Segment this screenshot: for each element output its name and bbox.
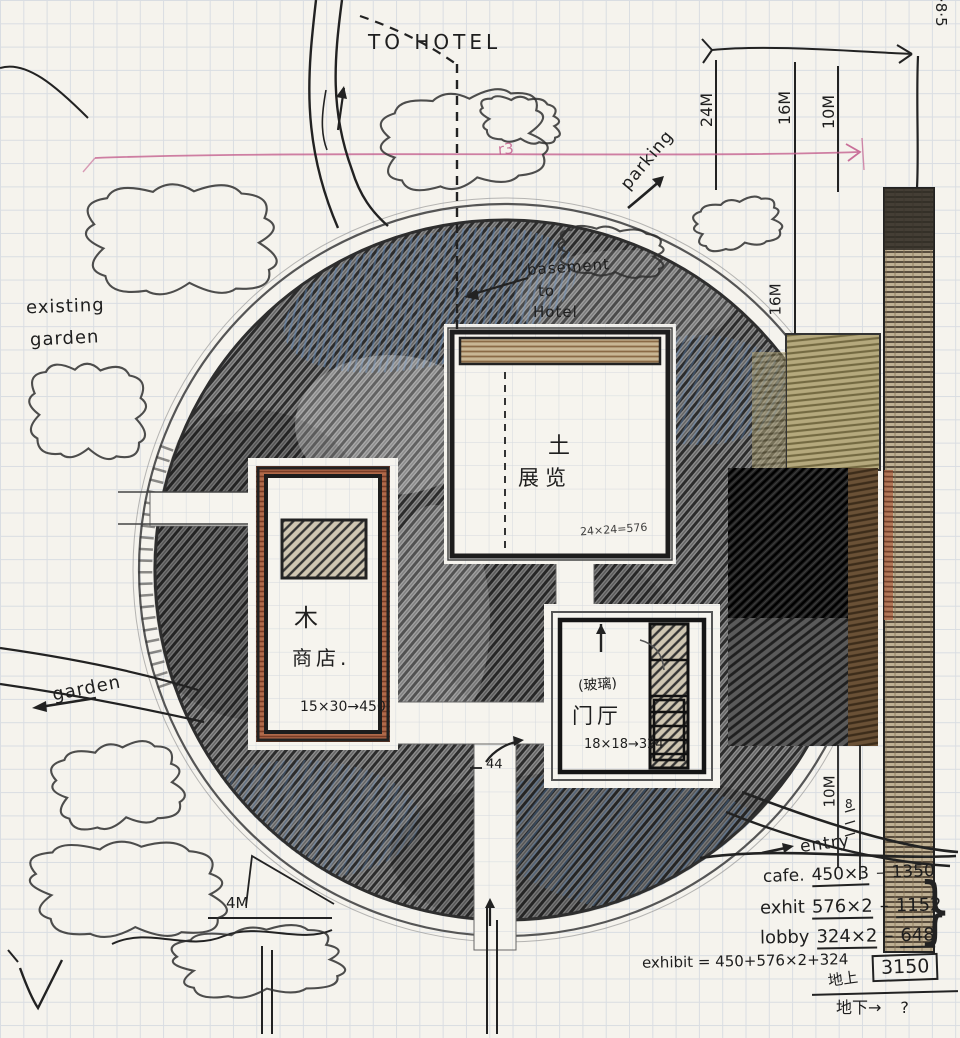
shop-area-label: 15×30→450 — [300, 700, 386, 714]
calc-exhibit-label: exhit — [760, 899, 805, 918]
dim-16m-mid-label: 16M — [769, 283, 784, 315]
existing-garden-label-line2: garden — [30, 328, 100, 350]
lobby-name-label: 门厅 — [572, 706, 622, 727]
basement-note-line2: to — [538, 284, 555, 299]
calc-lobby-row: lobby 324×2 – 648 — [760, 926, 935, 950]
lobby-material-label: (玻璃) — [578, 677, 618, 694]
calc-exhibit-expr: 576×2 — [812, 898, 873, 920]
tan-grove-block — [786, 334, 880, 470]
entry-arrow — [782, 843, 794, 853]
dim-10m-top-label: 10M — [821, 95, 837, 129]
garden-arrow — [32, 701, 47, 712]
above-ground-label: 地上 — [827, 970, 859, 989]
brown-strip — [848, 468, 878, 746]
dim-10m-right-label: 10M — [823, 775, 838, 807]
calc-dash: – — [876, 865, 885, 882]
dim-16m-top-label: 16M — [777, 91, 793, 125]
sketch-sheet: TO HOTEL ·8·5 parking basement to Hotel … — [0, 0, 960, 1038]
calc-lobby-label: lobby — [760, 929, 810, 948]
calc-dash: – — [884, 927, 893, 945]
existing-garden-label-line1: existing — [26, 297, 105, 318]
lobby-building — [544, 604, 720, 788]
total-boxed-value: 3150 — [872, 953, 939, 982]
date-label: ·8·5 — [933, 0, 948, 27]
tree-cloud — [51, 741, 185, 829]
calc-cafe-label: cafe. — [763, 868, 805, 886]
below-ground-row: 地下→ ? — [836, 1000, 909, 1016]
lobby-area-label: 18×18→324 — [584, 738, 664, 751]
exhibition-material-label: 土 — [548, 436, 570, 458]
exhibition-top-hatch — [460, 338, 660, 364]
calc-brace: } — [918, 874, 952, 948]
basement-note-line3: Hotel — [533, 305, 578, 320]
check-mark — [20, 960, 62, 1008]
calc-dash: – — [880, 897, 889, 915]
tree-cloud — [172, 925, 346, 998]
dim-4m-label: 4M — [226, 896, 249, 911]
shop-name-label: 商店. — [292, 648, 350, 668]
calc-exhibit-row: exhit 576×2 – 1152 — [760, 896, 942, 920]
calc-lobby-expr: 324×2 — [816, 927, 877, 949]
exhibition-name-label: 展览 — [518, 468, 572, 489]
calc-total-expr: exhibit = 450+576×2+324 — [642, 952, 849, 971]
dim-24m-label: 24M — [699, 93, 715, 127]
pink-reference-line — [83, 138, 864, 172]
tree-cloud — [86, 184, 277, 294]
calc-cafe-expr: 450×3 — [811, 865, 869, 887]
tree-cloud — [693, 197, 782, 252]
small-8-mark: 8 — [845, 798, 853, 810]
below-ground-value: ? — [900, 1000, 909, 1016]
corridor-dim-label: 44 — [486, 758, 503, 772]
road-strip — [884, 188, 934, 952]
to-hotel-arrow — [336, 86, 347, 99]
shop-material-label: 木 — [294, 606, 318, 630]
dark-block — [728, 468, 848, 618]
below-ground-label: 地下→ — [836, 1000, 881, 1016]
r3-label: r3 — [497, 141, 514, 157]
to-hotel-label: TO HOTEL — [368, 32, 501, 52]
shop-inner-room — [282, 520, 366, 578]
tree-cloud — [29, 364, 146, 459]
tree-cloud — [480, 96, 560, 143]
tree-cloud — [30, 842, 227, 937]
mid-dark-block — [728, 618, 848, 746]
